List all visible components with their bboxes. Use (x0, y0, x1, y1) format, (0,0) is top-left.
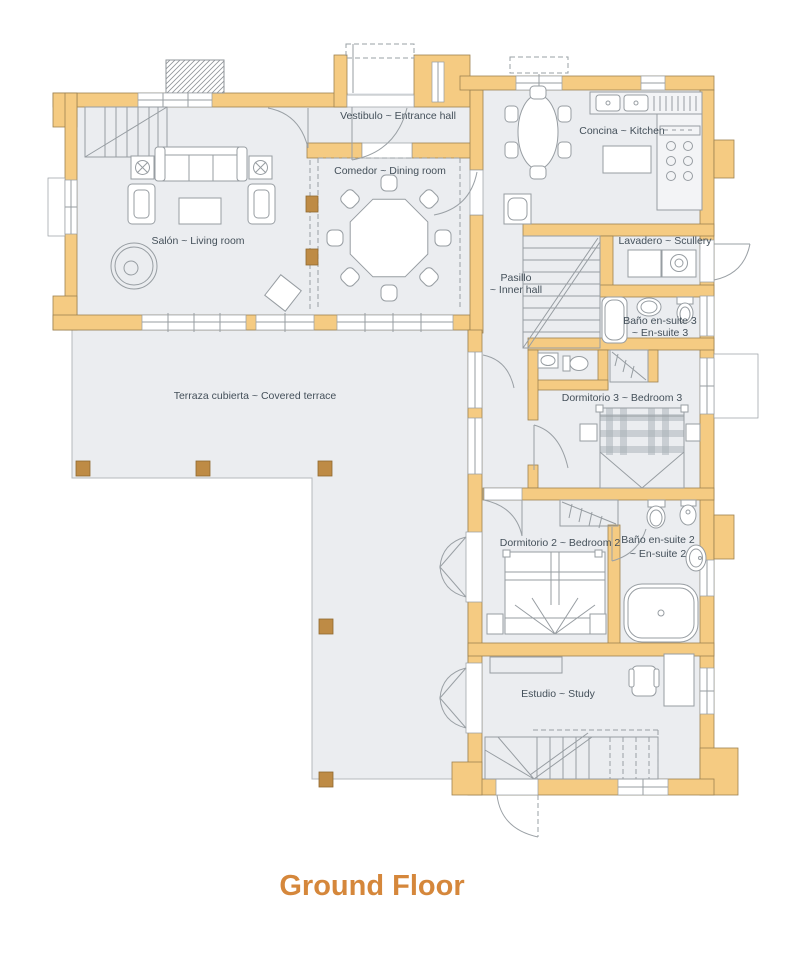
label-bano3-1: Baño en-suite 3 (623, 315, 697, 327)
label-dormitorio3: Dormitorio 3 ~ Bedroom 3 (562, 392, 683, 404)
bedside-table (487, 614, 503, 634)
label-salon: Salón ~ Living room (151, 235, 244, 247)
desk (664, 654, 694, 706)
label-cocina: Concina ~ Kitchen (579, 125, 665, 137)
desk-chair (629, 666, 659, 696)
bedside-table (580, 424, 597, 441)
bedside-table (590, 614, 606, 634)
side-table-lamp (131, 156, 154, 179)
terrace-pillars (76, 461, 333, 787)
floor-title: Ground Floor (279, 870, 464, 902)
label-terraza: Terraza cubierta ~ Covered terrace (174, 390, 337, 402)
bedside-table (686, 424, 700, 441)
column-block (306, 196, 318, 212)
bidet (680, 500, 696, 525)
label-pasillo-2: ~ Inner hall (490, 284, 542, 296)
sofa (155, 147, 247, 181)
label-bano3-2: ~ En-suite 3 (632, 327, 688, 339)
column-block (306, 249, 318, 265)
label-comedor: Comedor ~ Dining room (334, 165, 446, 177)
dining-table (350, 199, 428, 277)
label-bano2-1: Baño en-suite 2 (621, 534, 695, 546)
side-table-lamp (249, 156, 272, 179)
fridge (504, 194, 531, 224)
shower (624, 584, 698, 642)
armchair (128, 184, 155, 224)
toilet (647, 500, 665, 528)
label-pasillo-1: Pasillo (501, 272, 532, 284)
label-bano2-2: ~ En-suite 2 (630, 548, 686, 560)
floor-plan-canvas: Vestibulo ~ Entrance hall Concina ~ Kitc… (0, 0, 800, 967)
fireplace-chimney (166, 60, 224, 93)
bedroom2-furniture (487, 550, 606, 634)
label-dormitorio2: Dormitorio 2 ~ Bedroom 2 (500, 537, 621, 549)
label-estudio: Estudio ~ Study (521, 688, 596, 700)
washbasin (686, 545, 706, 571)
armchair (248, 184, 275, 224)
coffee-table (179, 198, 221, 224)
floor-plan-page: Vestibulo ~ Entrance hall Concina ~ Kitc… (0, 0, 800, 967)
label-lavadero: Lavadero ~ Scullery (618, 235, 712, 247)
kitchen-island (603, 146, 651, 173)
label-vestibulo: Vestibulo ~ Entrance hall (340, 110, 456, 122)
